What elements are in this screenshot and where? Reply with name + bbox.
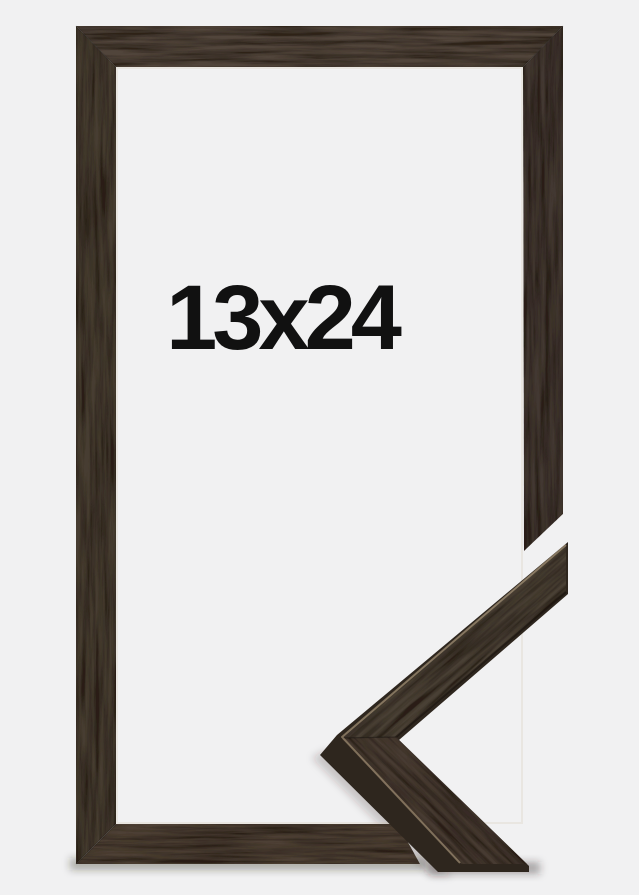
- product-image: 13x24: [0, 0, 639, 895]
- frame-size-label: 13x24: [0, 272, 563, 364]
- picture-frame: [76, 26, 563, 864]
- inner-edge-highlight: [117, 68, 522, 823]
- frame-illustration: [0, 0, 639, 895]
- corner-sample: [167, 377, 639, 895]
- frame-bottom-bar: [76, 824, 420, 864]
- miter-seams: [76, 26, 563, 864]
- frame-left-bar: [76, 26, 116, 864]
- frame-top-bar: [76, 26, 563, 67]
